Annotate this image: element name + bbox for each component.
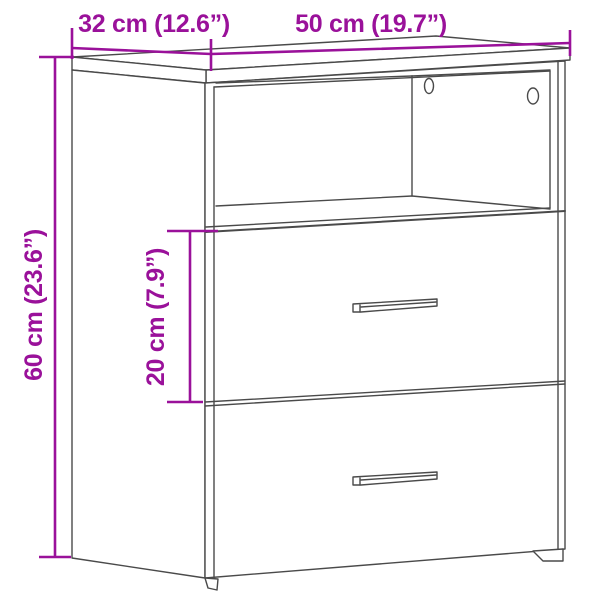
diagram-canvas: 32 cm (12.6”) 50 cm (19.7”) 60 cm (23.6”… (0, 0, 600, 600)
screw-hole-icon (528, 88, 539, 104)
dimension-label-drawer-height: 20 cm (7.9”) (142, 248, 170, 386)
dimension-label-width: 50 cm (19.7”) (295, 10, 447, 38)
cabinet-side-panel (72, 70, 205, 578)
front-left-foot (205, 578, 218, 590)
dimension-label-depth: 32 cm (12.6”) (78, 10, 230, 38)
product-dimension-diagram: 32 cm (12.6”) 50 cm (19.7”) 60 cm (23.6”… (0, 0, 600, 600)
front-right-foot (533, 549, 563, 561)
screw-hole-icon (425, 79, 434, 94)
dimension-label-height: 60 cm (23.6”) (20, 229, 48, 381)
cabinet-front-body (205, 61, 565, 578)
